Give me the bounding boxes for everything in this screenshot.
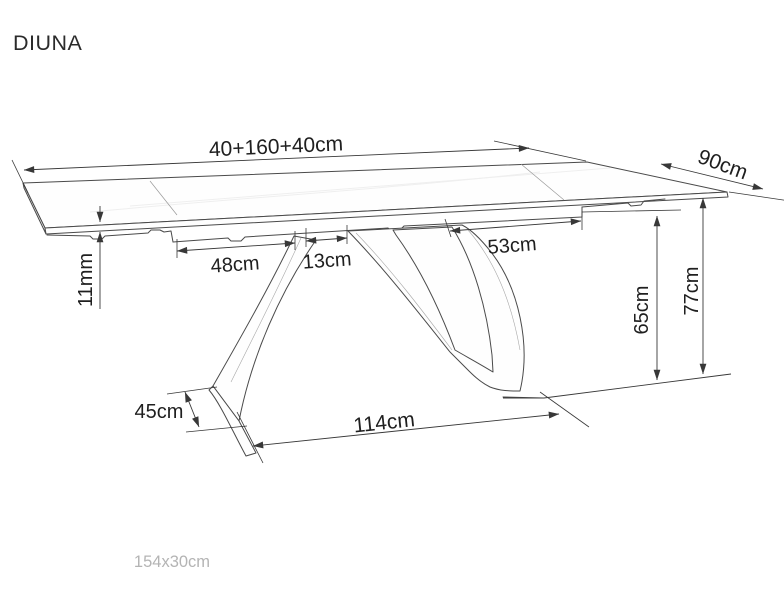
- dim-label-underframe-right-offset: 53cm: [487, 233, 537, 259]
- dim-label-table-height: 77cm: [681, 267, 703, 316]
- extension-line: [540, 392, 589, 427]
- table-technical-drawing: 40+160+40cm 90cm 11mm 48cm 13cm: [0, 0, 784, 600]
- extension-line: [729, 192, 784, 201]
- dim-label-top-depth: 90cm: [695, 145, 751, 184]
- footer-note: 154x30cm: [134, 553, 210, 571]
- tabletop-surface: [23, 162, 727, 228]
- page-title: DIUNA: [13, 31, 83, 55]
- dim-label-base-span: 114cm: [352, 408, 416, 437]
- dim-label-foot-depth: 45cm: [135, 401, 184, 423]
- dim-label-underframe-left-offset: 48cm: [210, 252, 260, 277]
- dimension-table-height: 77cm: [681, 198, 703, 374]
- dim-label-base-top-gap: 13cm: [302, 248, 352, 273]
- dim-label-underframe-clearance: 65cm: [631, 286, 653, 335]
- technical-drawing-page: 40+160+40cm 90cm 11mm 48cm 13cm: [0, 0, 784, 600]
- dimension-base-span: 114cm: [237, 392, 589, 463]
- extension-line: [12, 160, 28, 193]
- floor-reference-line: [503, 374, 731, 398]
- extension-line: [494, 141, 586, 161]
- dim-label-top-thickness: 11mm: [75, 253, 97, 307]
- dimension-underframe-clearance: 65cm: [582, 210, 681, 380]
- tabletop: [23, 162, 728, 234]
